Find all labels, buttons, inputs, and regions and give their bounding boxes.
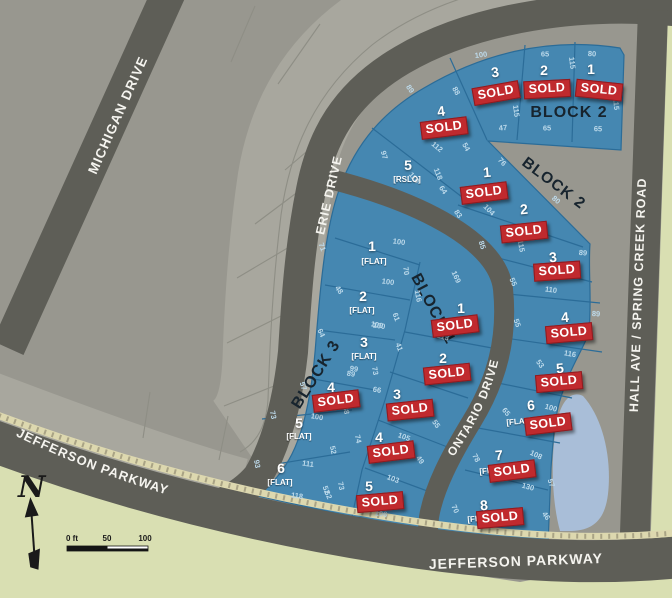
compass-north-label: N (17, 470, 47, 505)
plat-map: MICHIGAN DRIVE ERIE DRIVE ONTARIO DRIVE … (0, 0, 672, 598)
scale-hundred-label: 100 (138, 534, 152, 543)
plat-map-canvas: MICHIGAN DRIVE ERIE DRIVE ONTARIO DRIVE … (0, 0, 672, 598)
scale-zero-label: 0 ft (66, 534, 78, 543)
block-2-label-top: BLOCK 2 (530, 104, 607, 121)
scale-fifty-label: 50 (103, 534, 112, 543)
